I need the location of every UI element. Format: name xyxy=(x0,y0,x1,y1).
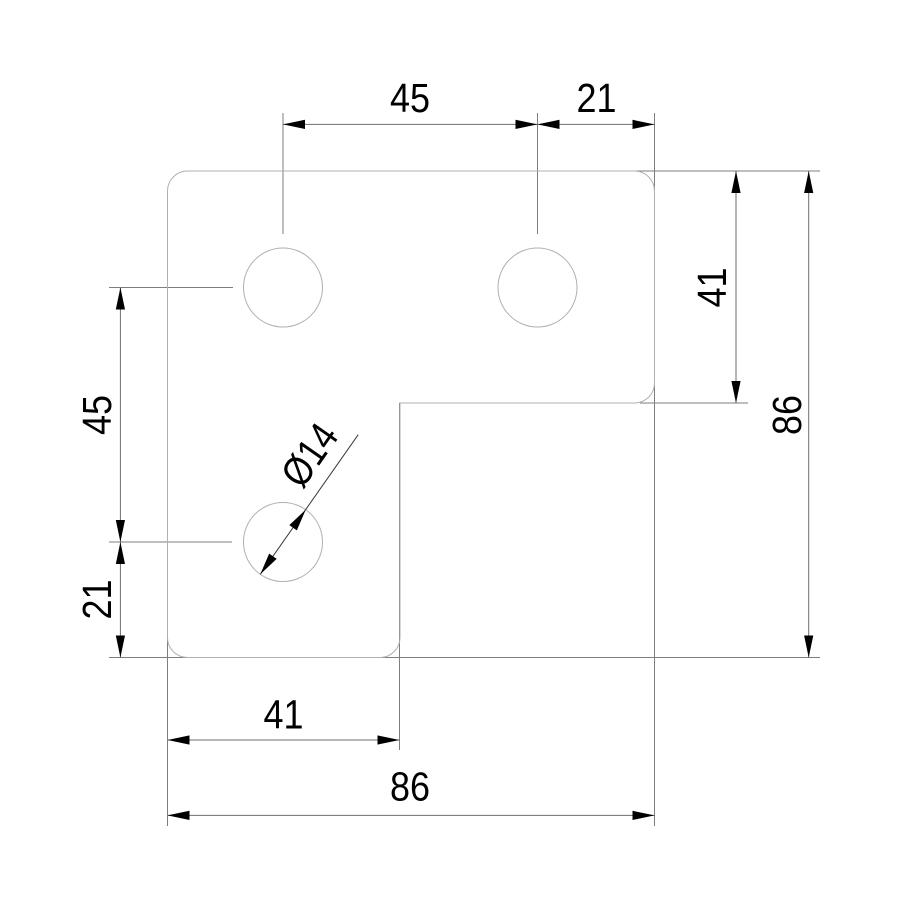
svg-text:45: 45 xyxy=(390,75,430,121)
svg-text:41: 41 xyxy=(264,692,304,738)
svg-text:45: 45 xyxy=(74,395,120,435)
svg-text:86: 86 xyxy=(390,764,430,810)
svg-text:21: 21 xyxy=(74,580,120,620)
svg-text:21: 21 xyxy=(577,75,617,121)
svg-text:41: 41 xyxy=(689,268,735,308)
svg-text:86: 86 xyxy=(764,395,810,435)
